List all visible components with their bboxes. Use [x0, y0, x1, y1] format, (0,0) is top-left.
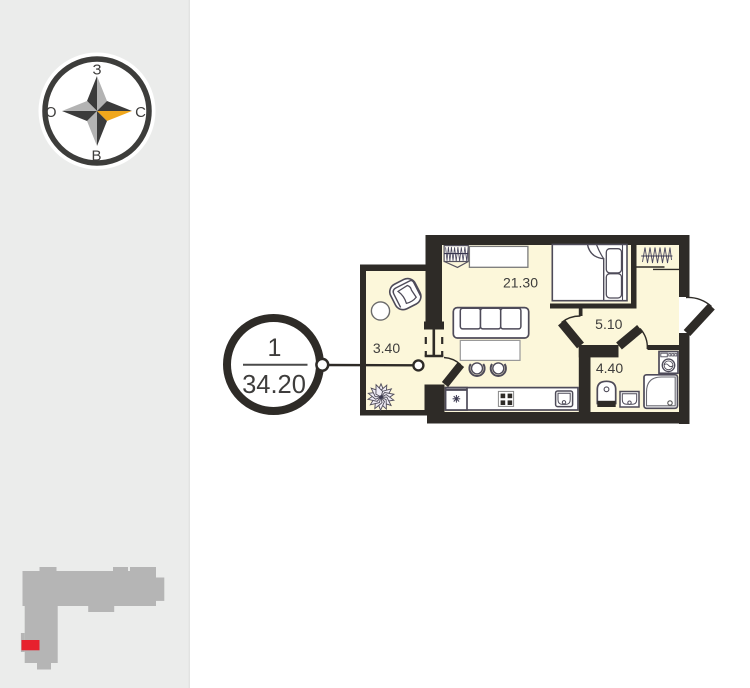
svg-text:5.10: 5.10: [595, 316, 622, 332]
svg-text:21.30: 21.30: [503, 275, 538, 291]
svg-text:Ю: Ю: [41, 104, 56, 121]
svg-text:С: С: [135, 104, 146, 121]
svg-text:З: З: [92, 62, 101, 79]
svg-text:3.40: 3.40: [373, 340, 400, 356]
svg-text:4.40: 4.40: [596, 360, 623, 376]
svg-text:34.20: 34.20: [242, 371, 306, 399]
svg-text:В: В: [91, 148, 101, 165]
svg-text:1: 1: [268, 334, 282, 362]
